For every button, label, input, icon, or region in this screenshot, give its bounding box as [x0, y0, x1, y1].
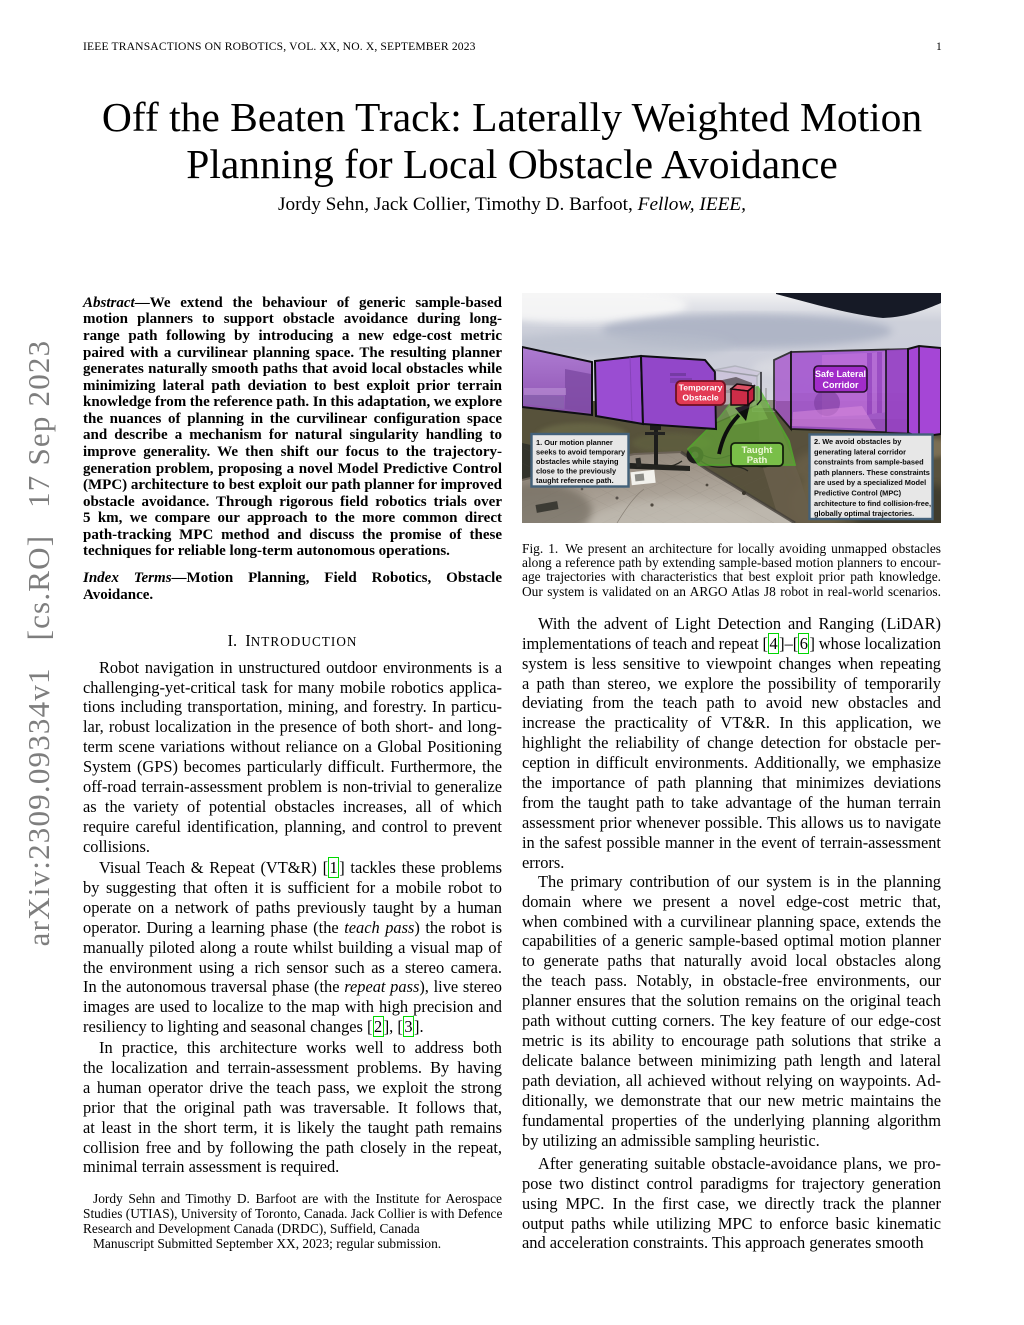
svg-text:Corridor: Corridor	[823, 380, 859, 390]
svg-text:2. We avoid obstacles by: 2. We avoid obstacles by	[814, 437, 902, 446]
svg-text:close to the previously: close to the previously	[536, 467, 617, 476]
svg-text:constraints from sample-based: constraints from sample-based	[814, 458, 924, 467]
svg-text:path planners. These constrain: path planners. These constraints	[814, 468, 930, 477]
svg-text:Path: Path	[747, 455, 768, 466]
svg-text:generating lateral corridor: generating lateral corridor	[814, 447, 906, 456]
svg-text:Obstacle: Obstacle	[682, 393, 719, 403]
svg-text:obstacles while staying: obstacles while staying	[536, 457, 619, 466]
svg-text:architecture to find collision: architecture to find collision-free,	[814, 499, 931, 508]
svg-text:seeks to avoid temporary: seeks to avoid temporary	[536, 448, 626, 457]
svg-text:Temporary: Temporary	[679, 383, 723, 393]
svg-text:are used by a specialized Mode: are used by a specialized Model	[814, 478, 926, 487]
svg-text:taught reference path.: taught reference path.	[536, 476, 614, 485]
svg-text:1. Our motion planner: 1. Our motion planner	[536, 438, 613, 447]
svg-text:Predictive Control (MPC): Predictive Control (MPC)	[814, 489, 902, 498]
svg-text:globally optimal trajectories.: globally optimal trajectories.	[814, 509, 914, 518]
svg-text:Safe Lateral: Safe Lateral	[815, 369, 866, 379]
